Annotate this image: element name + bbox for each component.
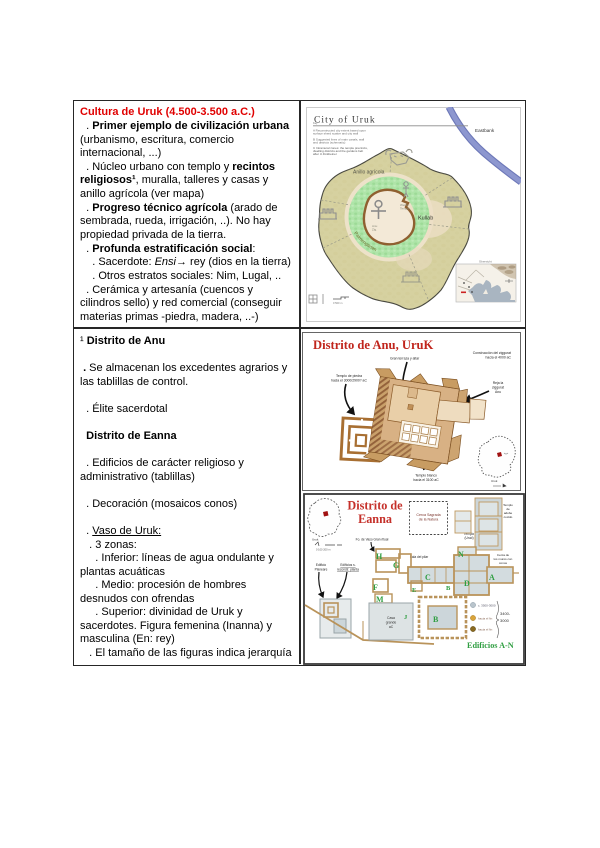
svg-text:E: E <box>412 587 416 594</box>
svg-text:Reja la: Reja la <box>493 381 504 385</box>
svg-text:cocido: cocido <box>504 515 513 519</box>
svg-text:Cerca Sagrada: Cerca Sagrada <box>416 513 440 517</box>
svg-text:Gran terraza y altar: Gran terraza y altar <box>390 357 420 361</box>
svg-text:Eastbank: Eastbank <box>475 128 495 133</box>
svg-text:Templo blanco: Templo blanco <box>415 474 437 478</box>
svg-text:Kullab: Kullab <box>418 216 433 222</box>
svg-text:B: B <box>433 615 439 624</box>
svg-text:Distrito de Anu, UruK: Distrito de Anu, UruK <box>313 338 434 352</box>
svg-text:D: D <box>464 579 470 588</box>
svg-text:conos: conos <box>499 561 508 565</box>
svg-text:3400-: 3400- <box>500 611 511 616</box>
svg-text:M: M <box>376 595 384 604</box>
svg-text:N: N <box>458 550 464 559</box>
svg-text:B: B <box>446 585 451 592</box>
svg-text:F: F <box>373 583 378 592</box>
svg-text:Zig.: Zig. <box>372 227 377 231</box>
svg-text:Anillo agrícola: Anillo agrícola <box>353 170 385 176</box>
svg-text:aC: aC <box>389 625 394 629</box>
svg-text:reconstr. planta: reconstr. planta <box>337 567 359 571</box>
svg-text:G: G <box>393 561 399 570</box>
svg-text:Edificios s.: Edificios s. <box>340 563 355 567</box>
svg-text:and districts (schematic): and districts (schematic) <box>313 140 345 144</box>
svg-text:hacia el 3100 aC: hacia el 3100 aC <box>413 478 439 482</box>
svg-text:Uruk: Uruk <box>312 537 319 541</box>
svg-text:0 500 m: 0 500 m <box>333 301 342 305</box>
svg-text:Uruk: Uruk <box>491 479 498 483</box>
svg-text:Planeare: Planeare <box>315 567 328 571</box>
svg-text:Key: Key <box>313 121 318 125</box>
svg-text:Sala del pilar: Sala del pilar <box>410 555 429 559</box>
svg-text:de la Natura: de la Natura <box>419 517 439 521</box>
svg-text:Casa: Casa <box>387 616 395 620</box>
svg-text:Fo. de Vaso Gran ritual: Fo. de Vaso Gran ritual <box>356 537 389 541</box>
svg-text:c. 3500-3000: c. 3500-3000 <box>478 603 496 607</box>
svg-text:A: A <box>489 573 495 582</box>
svg-text:(Urud): (Urud) <box>464 536 473 540</box>
svg-text:hacia el fin: hacia el fin <box>478 627 493 631</box>
svg-text:ziggurat: ziggurat <box>492 386 504 390</box>
svg-text:hacia el 4000 aC: hacia el 4000 aC <box>486 356 512 360</box>
svg-text:0 100 200 m: 0 100 200 m <box>316 547 330 551</box>
svg-text:Templo de piedra: Templo de piedra <box>336 374 362 378</box>
svg-text:Edificios A-N: Edificios A-N <box>467 641 514 650</box>
svg-text:Temple: Temple <box>400 206 410 210</box>
svg-text:Distrito de: Distrito de <box>347 498 403 512</box>
svg-text:H: H <box>376 552 383 561</box>
svg-text:surface sherd scatter and city: surface sherd scatter and city wall <box>313 132 359 136</box>
svg-text:Eanna: Eanna <box>358 512 392 526</box>
svg-text:City of Uruk: City of Uruk <box>314 115 376 126</box>
svg-text:grande: grande <box>386 620 397 624</box>
svg-text:hacia el 3000/2900? aC: hacia el 3000/2900? aC <box>331 379 367 383</box>
svg-text:after U.Finkbeiner: after U.Finkbeiner <box>313 152 337 156</box>
svg-text:3000: 3000 <box>500 618 510 623</box>
svg-text:Anu: Anu <box>495 390 501 394</box>
svg-text:Übersicht: Übersicht <box>479 260 492 264</box>
svg-text:Construcción del ziggurat: Construcción del ziggurat <box>473 351 511 355</box>
svg-text:C: C <box>425 573 431 582</box>
svg-text:hacia el fin: hacia el fin <box>478 616 493 620</box>
svg-text:Edificio: Edificio <box>316 563 327 567</box>
